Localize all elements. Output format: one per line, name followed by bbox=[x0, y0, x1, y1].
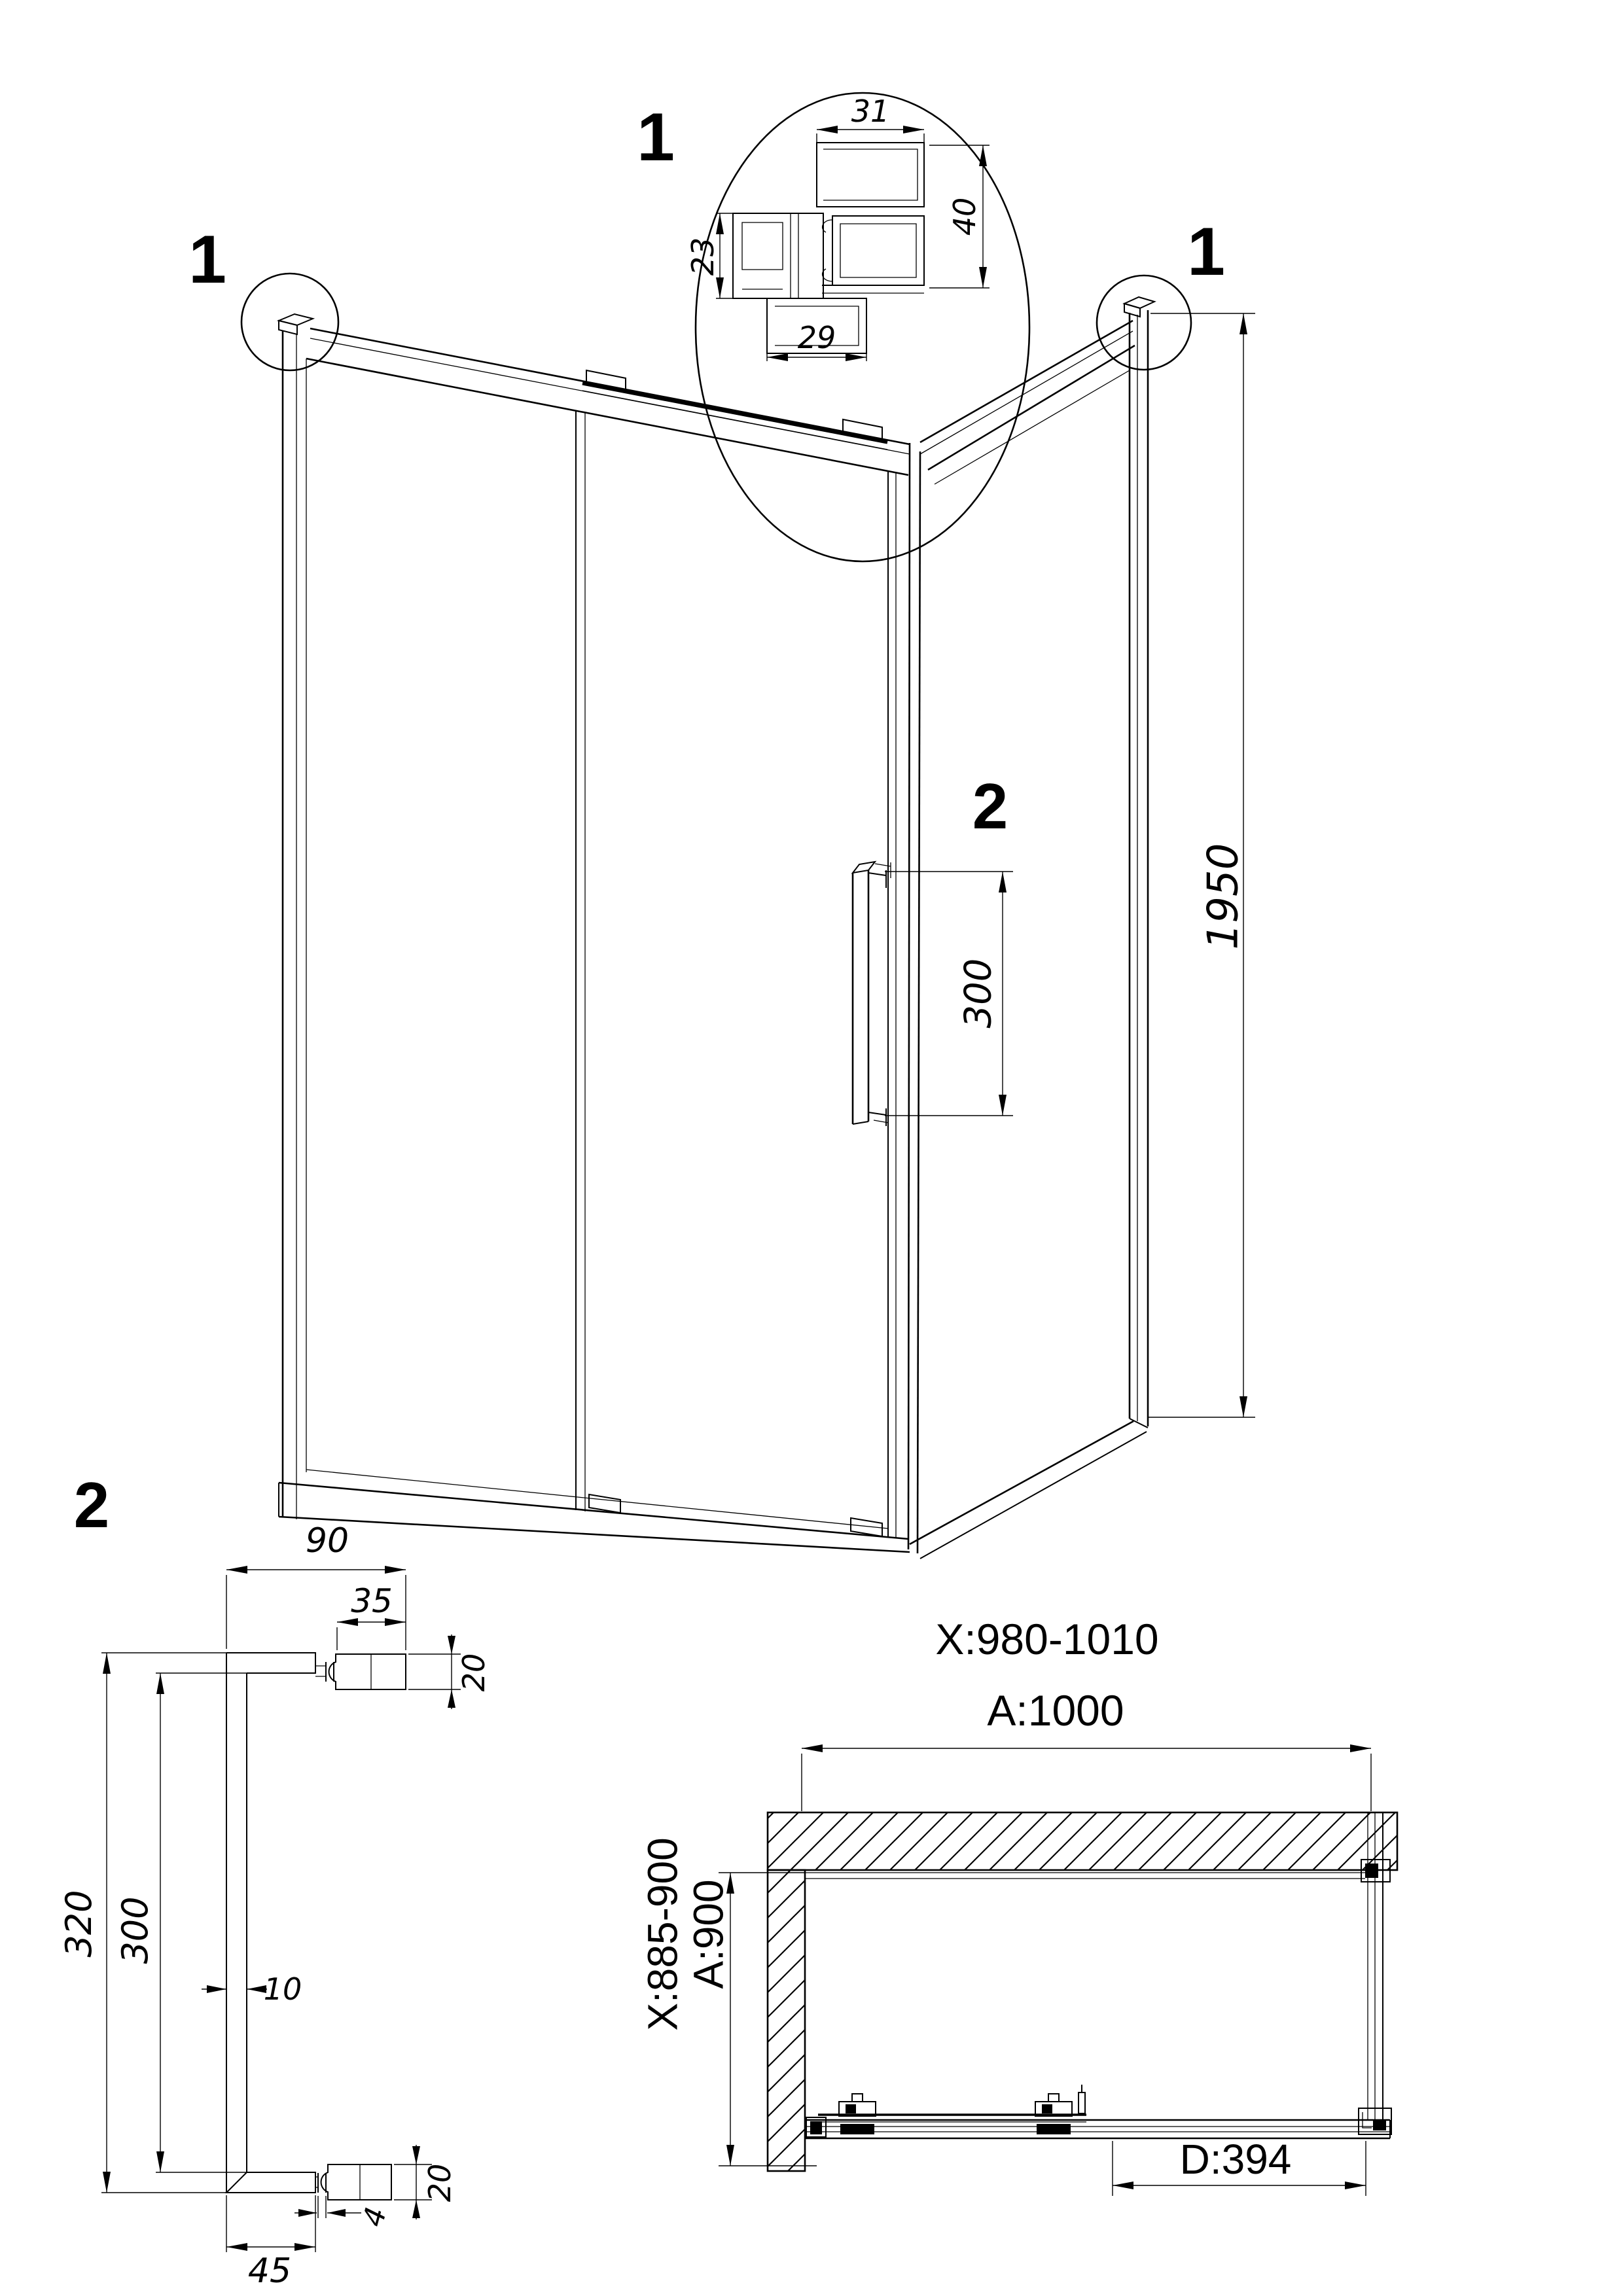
profile-detail-view: 1 31 40 bbox=[637, 93, 1029, 561]
callout-circle-left bbox=[241, 274, 338, 370]
dim-23: 23 bbox=[685, 213, 733, 298]
plan-depth-range: X:885-900 bbox=[639, 1837, 686, 2030]
dim-plan-width bbox=[802, 1744, 1371, 1811]
dim-20-top: 20 bbox=[408, 1634, 491, 1709]
dim-text-20-bottom: 20 bbox=[422, 2164, 457, 2202]
detail-ellipse bbox=[696, 93, 1029, 561]
dim-45: 45 bbox=[226, 2195, 315, 2291]
dim-handle-300: 300 bbox=[885, 872, 1013, 1116]
shower-enclosure-drawing: 1 1 1950 300 2 1 bbox=[0, 0, 1623, 2296]
dim-text-90: 90 bbox=[306, 1521, 349, 1561]
dim-text-20-top: 20 bbox=[456, 1653, 491, 1692]
door-handle bbox=[853, 862, 891, 1126]
corner-post bbox=[888, 443, 920, 1553]
dim-text-300-detail: 300 bbox=[115, 1896, 156, 1964]
dim-text-320: 320 bbox=[58, 1890, 99, 1957]
handle-detail-view: 2 90 bbox=[58, 1469, 491, 2291]
callout-label-handle: 2 bbox=[972, 770, 1008, 842]
handle-side-profile bbox=[226, 1653, 406, 2200]
panel-divider bbox=[576, 411, 585, 1511]
dim-text-40: 40 bbox=[947, 198, 982, 236]
dim-text-10: 10 bbox=[264, 1971, 302, 2007]
dim-text-1950: 1950 bbox=[1199, 843, 1247, 950]
dim-40: 40 bbox=[929, 145, 990, 288]
dim-text-31: 31 bbox=[851, 94, 890, 129]
plan-width-nominal: A:1000 bbox=[987, 1686, 1124, 1735]
dim-text-45: 45 bbox=[248, 2252, 291, 2291]
dim-door-opening: D:394 bbox=[1113, 2136, 1366, 2196]
dim-1950: 1950 bbox=[1148, 313, 1255, 1417]
callout-circle-right bbox=[1097, 275, 1191, 370]
dim-text-23: 23 bbox=[685, 238, 721, 276]
dim-20-bottom: 20 bbox=[394, 2145, 457, 2219]
callout-label-right: 1 bbox=[1187, 214, 1225, 290]
plan-walls bbox=[768, 1812, 1397, 2171]
dim-35: 35 bbox=[337, 1582, 406, 1650]
main-3d-view: 1 1 1950 300 2 bbox=[188, 214, 1255, 1559]
dim-10: 10 bbox=[202, 1971, 302, 2007]
plan-back-glass bbox=[805, 1873, 1365, 1879]
plan-door-opening: D:394 bbox=[1180, 2136, 1292, 2183]
left-post bbox=[279, 314, 313, 1519]
dim-text-300-main: 300 bbox=[957, 959, 1000, 1029]
detail1-label: 1 bbox=[637, 99, 675, 175]
plan-view: X:980-1010 A:1000 X:88 bbox=[639, 1615, 1397, 2196]
dim-29: 29 bbox=[767, 320, 866, 361]
dim-4: 4 bbox=[294, 2196, 393, 2230]
plan-depth-nominal: A:900 bbox=[685, 1879, 732, 1988]
technical-drawing-page: 1 1 1950 300 2 1 bbox=[0, 0, 1623, 2296]
side-panel bbox=[910, 297, 1154, 1559]
plan-side-panel bbox=[1361, 1812, 1390, 2127]
dim-text-4: 4 bbox=[357, 2204, 394, 2230]
front-bottom-rail bbox=[279, 1470, 910, 1552]
dim-text-29: 29 bbox=[798, 320, 836, 355]
plan-width-range: X:980-1010 bbox=[935, 1615, 1158, 1663]
plan-bottom-track bbox=[805, 2085, 1391, 2138]
callout-label-left: 1 bbox=[188, 222, 226, 298]
detail2-label: 2 bbox=[74, 1469, 110, 1541]
dim-text-35: 35 bbox=[351, 1582, 393, 1620]
